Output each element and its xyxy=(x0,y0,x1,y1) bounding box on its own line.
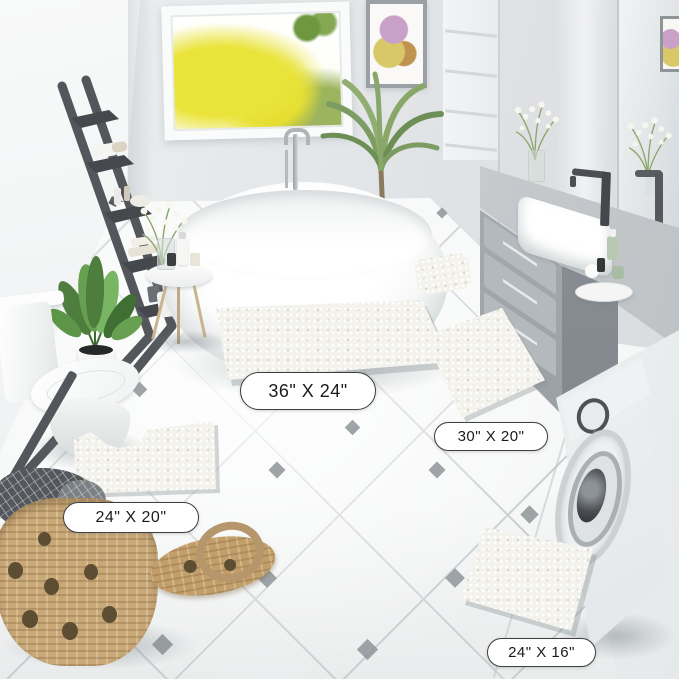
size-label-text: 36" X 24" xyxy=(268,381,347,402)
wall-niche-shelves xyxy=(443,0,500,160)
tray-pump-top xyxy=(610,229,616,237)
sink-faucet-spout xyxy=(570,176,576,187)
basket-dot xyxy=(183,559,198,574)
tub-faucet-spout xyxy=(284,128,310,145)
size-label-text: 24" X 20" xyxy=(95,509,166,527)
mirror-flowers-reflection xyxy=(619,112,677,178)
tub-faucet-handle xyxy=(285,150,288,188)
side-table-top xyxy=(146,263,212,287)
counter-vase xyxy=(528,150,545,182)
bathroom-product-photo: 36" X 24" 30" X 20" 24" X 20" 24" X 16" xyxy=(0,0,679,679)
basket-dot xyxy=(84,564,98,580)
basket-dot xyxy=(102,606,117,623)
table-pump-bottle xyxy=(177,238,188,265)
basket-dot xyxy=(8,562,23,579)
plant-pot-soil xyxy=(79,345,113,355)
basket-dot xyxy=(38,532,51,546)
niche-shelf-line xyxy=(445,109,497,117)
table-candle xyxy=(190,253,200,266)
basket-dot xyxy=(22,610,38,628)
mirror-faucet-reflection xyxy=(655,172,663,224)
tray-green-pump xyxy=(607,236,619,260)
table-jar-dark xyxy=(167,253,176,266)
niche-shelf-line xyxy=(445,69,497,77)
size-label-text: 30" X 20" xyxy=(458,428,525,445)
tray-bottle-dark xyxy=(597,258,605,272)
basket-dot xyxy=(44,578,59,595)
size-label-24x16: 24" X 16" xyxy=(487,638,596,667)
basket-dot xyxy=(62,622,78,640)
size-label-24x20: 24" X 20" xyxy=(63,502,199,533)
size-label-36x24: 36" X 24" xyxy=(240,372,376,410)
mirror-art-frame-reflection xyxy=(660,16,679,72)
size-label-30x20: 30" X 20" xyxy=(434,422,548,451)
tray-jar-green xyxy=(612,266,624,279)
bathtub-rim xyxy=(178,190,432,280)
niche-shelf-line xyxy=(445,143,497,151)
sink-faucet xyxy=(600,172,611,226)
counter-tray xyxy=(575,282,633,302)
table-pump-top xyxy=(179,232,186,239)
niche-shelf-line xyxy=(445,29,497,37)
size-label-text: 24" X 16" xyxy=(508,644,575,661)
